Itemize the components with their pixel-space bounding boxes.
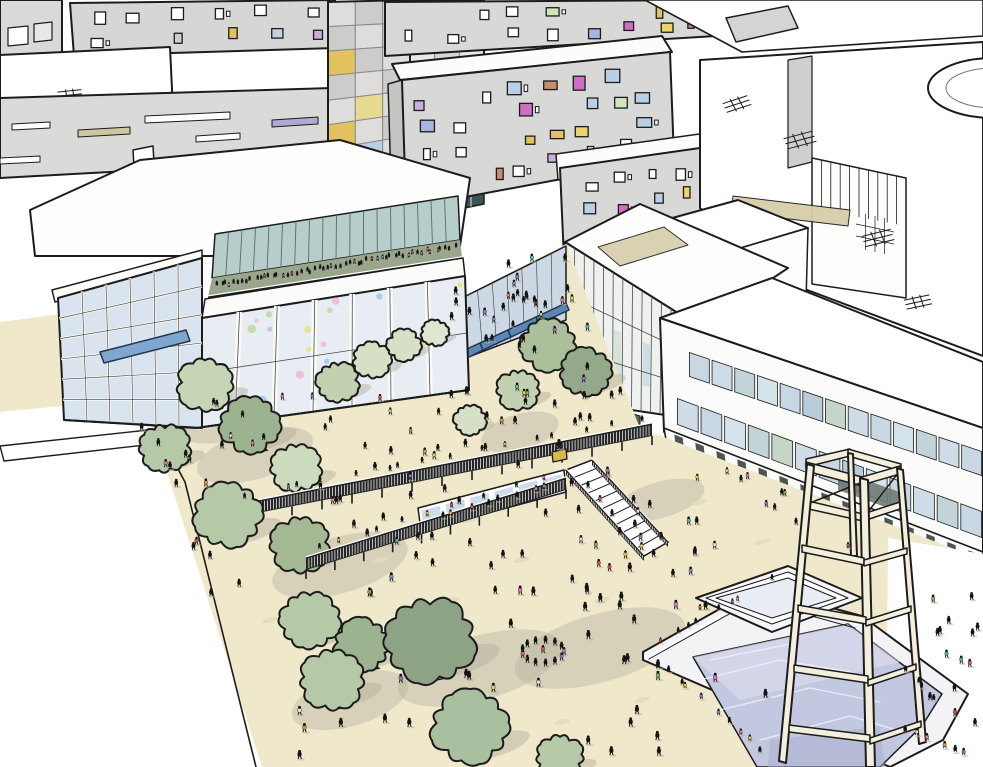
far-left-window [34, 22, 52, 42]
plaza-scene-canvas [0, 0, 983, 767]
slit-window [0, 156, 40, 164]
grey-strip-wall [788, 56, 812, 168]
statue-plinth [552, 449, 567, 462]
building-top-left-strip [70, 0, 335, 56]
far-left-window [8, 26, 28, 46]
architectural-rendering [0, 0, 983, 767]
slit-window [12, 122, 50, 130]
